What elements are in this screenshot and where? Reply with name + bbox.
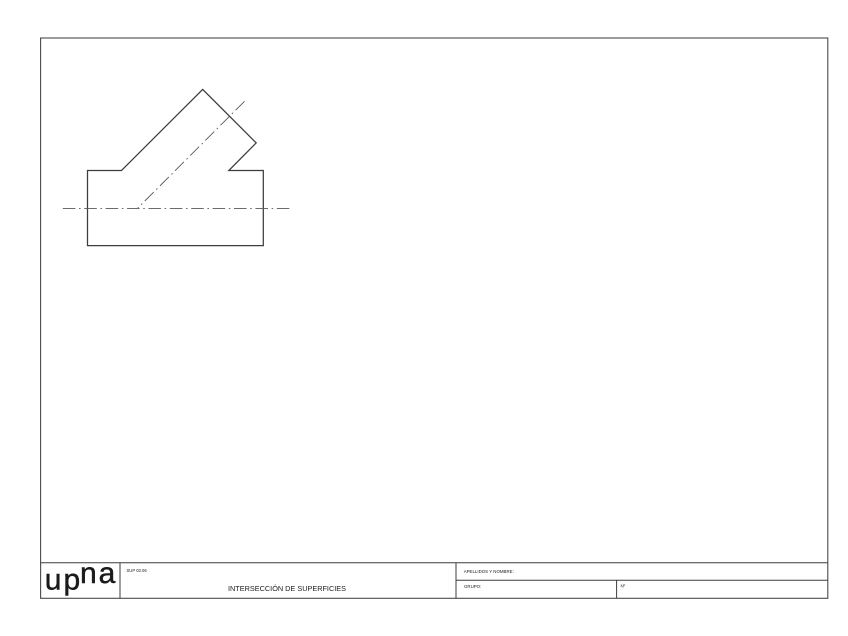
- svg-text:APELLIDOS Y NOMBRE:: APELLIDOS Y NOMBRE:: [464, 569, 514, 574]
- svg-text:up: up: [45, 564, 82, 597]
- svg-text:Nº: Nº: [621, 583, 626, 588]
- svg-text:SUP 03.06: SUP 03.06: [127, 568, 148, 573]
- svg-text:GRUPO:: GRUPO:: [464, 584, 481, 589]
- svg-text:na: na: [80, 557, 117, 590]
- svg-text:INTERSECCIÓN DE SUPERFICIES: INTERSECCIÓN DE SUPERFICIES: [228, 584, 346, 593]
